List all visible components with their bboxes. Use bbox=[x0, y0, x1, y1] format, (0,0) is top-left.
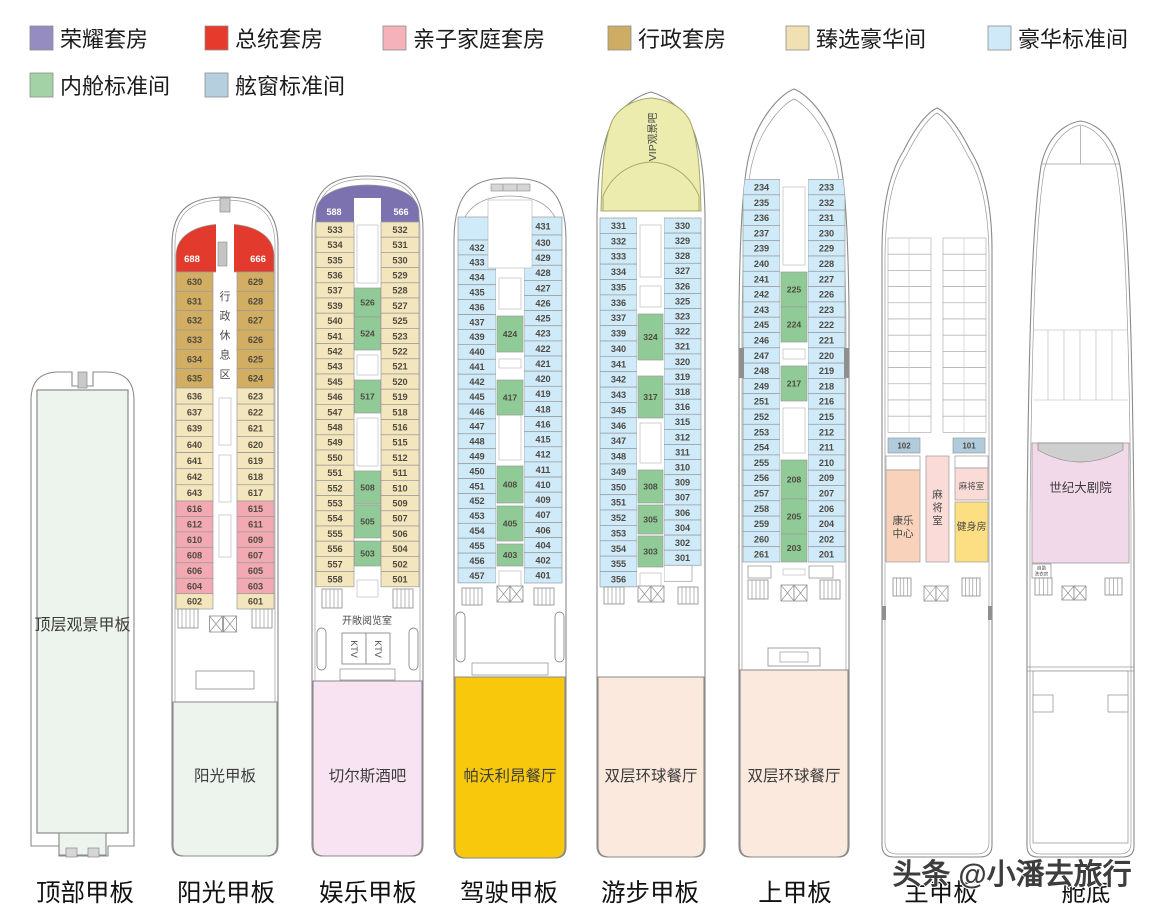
svg-text:203: 203 bbox=[787, 543, 802, 553]
svg-text:315: 315 bbox=[675, 417, 690, 427]
svg-text:241: 241 bbox=[754, 274, 769, 284]
svg-text:总统套房: 总统套房 bbox=[235, 27, 323, 52]
svg-text:545: 545 bbox=[327, 377, 342, 387]
svg-text:529: 529 bbox=[392, 271, 407, 281]
svg-text:623: 623 bbox=[248, 391, 263, 401]
svg-text:帕沃利昂餐厅: 帕沃利昂餐厅 bbox=[463, 767, 556, 785]
svg-text:101: 101 bbox=[962, 441, 976, 450]
svg-text:446: 446 bbox=[469, 407, 484, 417]
svg-text:225: 225 bbox=[787, 285, 802, 295]
svg-text:609: 609 bbox=[248, 535, 263, 545]
svg-text:547: 547 bbox=[327, 407, 342, 417]
svg-text:540: 540 bbox=[327, 316, 342, 326]
svg-text:606: 606 bbox=[187, 566, 202, 576]
svg-text:娱乐甲板: 娱乐甲板 bbox=[319, 879, 417, 907]
svg-text:上甲板: 上甲板 bbox=[758, 879, 832, 907]
svg-text:410: 410 bbox=[535, 480, 550, 490]
svg-text:353: 353 bbox=[611, 528, 626, 538]
svg-text:552: 552 bbox=[327, 483, 342, 493]
svg-text:642: 642 bbox=[187, 472, 202, 482]
svg-text:211: 211 bbox=[819, 443, 834, 453]
svg-text:324: 324 bbox=[643, 332, 658, 342]
svg-text:608: 608 bbox=[187, 550, 202, 560]
svg-text:206: 206 bbox=[819, 504, 834, 514]
svg-text:405: 405 bbox=[503, 519, 518, 529]
svg-text:610: 610 bbox=[187, 535, 202, 545]
svg-text:506: 506 bbox=[392, 529, 407, 539]
svg-text:630: 630 bbox=[187, 277, 202, 287]
svg-text:204: 204 bbox=[819, 519, 835, 529]
svg-text:440: 440 bbox=[469, 347, 484, 357]
svg-text:520: 520 bbox=[392, 377, 407, 387]
svg-text:荣耀套房: 荣耀套房 bbox=[60, 27, 148, 52]
svg-text:243: 243 bbox=[754, 305, 769, 315]
svg-text:221: 221 bbox=[819, 336, 834, 346]
svg-text:511: 511 bbox=[393, 468, 408, 478]
svg-text:254: 254 bbox=[754, 443, 770, 453]
svg-text:516: 516 bbox=[392, 423, 407, 433]
svg-text:526: 526 bbox=[360, 298, 375, 308]
svg-text:453: 453 bbox=[469, 511, 484, 521]
svg-text:内舱标准间: 内舱标准间 bbox=[60, 74, 170, 99]
svg-text:228: 228 bbox=[819, 259, 834, 269]
svg-text:603: 603 bbox=[248, 581, 263, 591]
svg-text:337: 337 bbox=[611, 313, 626, 323]
svg-text:431: 431 bbox=[535, 221, 550, 231]
svg-text:527: 527 bbox=[392, 301, 407, 311]
svg-text:641: 641 bbox=[187, 456, 202, 466]
svg-text:开敞阅览室: 开敞阅览室 bbox=[342, 614, 392, 627]
svg-text:625: 625 bbox=[248, 354, 263, 364]
svg-text:532: 532 bbox=[392, 225, 407, 235]
svg-text:452: 452 bbox=[469, 496, 484, 506]
svg-text:424: 424 bbox=[503, 329, 518, 339]
svg-text:537: 537 bbox=[327, 286, 342, 296]
svg-text:229: 229 bbox=[819, 244, 834, 254]
svg-text:404: 404 bbox=[535, 541, 551, 551]
svg-text:619: 619 bbox=[248, 456, 263, 466]
svg-text:521: 521 bbox=[392, 362, 407, 372]
svg-text:豪华标准间: 豪华标准间 bbox=[1018, 27, 1128, 52]
svg-text:419: 419 bbox=[535, 389, 550, 399]
svg-text:游步甲板: 游步甲板 bbox=[601, 879, 699, 907]
svg-text:304: 304 bbox=[675, 523, 691, 533]
svg-text:242: 242 bbox=[754, 290, 769, 300]
svg-text:530: 530 bbox=[392, 255, 407, 265]
svg-text:222: 222 bbox=[819, 320, 834, 330]
svg-text:301: 301 bbox=[675, 553, 690, 563]
svg-text:210: 210 bbox=[819, 458, 834, 468]
svg-text:316: 316 bbox=[675, 402, 690, 412]
svg-text:215: 215 bbox=[819, 412, 834, 422]
svg-text:408: 408 bbox=[503, 480, 518, 490]
svg-text:441: 441 bbox=[469, 362, 484, 372]
svg-text:224: 224 bbox=[787, 320, 802, 330]
svg-text:541: 541 bbox=[327, 331, 342, 341]
svg-text:233: 233 bbox=[819, 183, 834, 193]
svg-text:416: 416 bbox=[535, 419, 550, 429]
svg-text:505: 505 bbox=[360, 517, 375, 527]
svg-text:行政套房: 行政套房 bbox=[638, 27, 726, 52]
svg-text:602: 602 bbox=[187, 597, 202, 607]
svg-text:666: 666 bbox=[250, 254, 266, 265]
svg-text:409: 409 bbox=[535, 495, 550, 505]
svg-text:428: 428 bbox=[535, 268, 550, 278]
svg-text:509: 509 bbox=[392, 499, 407, 509]
svg-text:322: 322 bbox=[675, 327, 690, 337]
svg-text:556: 556 bbox=[327, 544, 342, 554]
svg-text:320: 320 bbox=[675, 357, 690, 367]
svg-text:舷窗标准间: 舷窗标准间 bbox=[235, 74, 345, 99]
svg-text:348: 348 bbox=[611, 452, 626, 462]
svg-text:618: 618 bbox=[248, 472, 263, 482]
svg-text:457: 457 bbox=[469, 571, 484, 581]
svg-text:417: 417 bbox=[503, 393, 518, 403]
svg-text:629: 629 bbox=[248, 277, 263, 287]
svg-text:607: 607 bbox=[248, 550, 263, 560]
svg-text:310: 310 bbox=[675, 463, 690, 473]
svg-text:415: 415 bbox=[535, 435, 550, 445]
svg-text:351: 351 bbox=[611, 498, 626, 508]
svg-text:507: 507 bbox=[392, 514, 407, 524]
svg-text:551: 551 bbox=[327, 468, 342, 478]
svg-text:455: 455 bbox=[469, 541, 484, 551]
svg-text:510: 510 bbox=[392, 483, 407, 493]
svg-text:617: 617 bbox=[248, 488, 263, 498]
svg-text:顶层观景甲板: 顶层观景甲板 bbox=[34, 616, 130, 634]
svg-text:319: 319 bbox=[675, 372, 690, 382]
svg-text:355: 355 bbox=[611, 559, 626, 569]
svg-text:234: 234 bbox=[754, 183, 770, 193]
svg-text:688: 688 bbox=[184, 254, 200, 265]
svg-text:434: 434 bbox=[469, 273, 485, 283]
svg-text:236: 236 bbox=[754, 213, 769, 223]
svg-text:240: 240 bbox=[754, 259, 769, 269]
svg-text:350: 350 bbox=[611, 482, 626, 492]
svg-text:588: 588 bbox=[326, 207, 341, 217]
svg-text:227: 227 bbox=[819, 274, 834, 284]
svg-text:330: 330 bbox=[675, 221, 690, 231]
svg-text:321: 321 bbox=[675, 342, 690, 352]
svg-text:524: 524 bbox=[360, 329, 375, 339]
svg-text:216: 216 bbox=[819, 397, 834, 407]
svg-text:335: 335 bbox=[611, 283, 626, 293]
svg-text:世纪大剧院: 世纪大剧院 bbox=[1049, 481, 1112, 495]
svg-text:543: 543 bbox=[327, 362, 342, 372]
svg-text:252: 252 bbox=[754, 412, 769, 422]
svg-text:531: 531 bbox=[392, 240, 407, 250]
svg-text:麻将室: 麻将室 bbox=[932, 488, 943, 527]
svg-text:341: 341 bbox=[611, 359, 626, 369]
svg-text:429: 429 bbox=[535, 253, 550, 263]
svg-text:318: 318 bbox=[675, 387, 690, 397]
svg-text:331: 331 bbox=[611, 221, 626, 231]
svg-text:207: 207 bbox=[819, 489, 834, 499]
svg-text:KTV: KTV bbox=[349, 640, 359, 658]
svg-text:麻将室: 麻将室 bbox=[959, 481, 985, 491]
svg-text:439: 439 bbox=[469, 332, 484, 342]
svg-text:546: 546 bbox=[327, 392, 342, 402]
svg-text:327: 327 bbox=[675, 266, 690, 276]
svg-text:201: 201 bbox=[819, 550, 834, 560]
svg-text:339: 339 bbox=[611, 329, 626, 339]
svg-text:407: 407 bbox=[535, 510, 550, 520]
svg-text:604: 604 bbox=[187, 581, 203, 591]
svg-text:624: 624 bbox=[248, 374, 264, 384]
svg-text:632: 632 bbox=[187, 316, 202, 326]
svg-text:626: 626 bbox=[248, 335, 263, 345]
svg-text:343: 343 bbox=[611, 390, 626, 400]
svg-text:261: 261 bbox=[754, 550, 769, 560]
svg-text:259: 259 bbox=[754, 519, 769, 529]
svg-text:436: 436 bbox=[469, 302, 484, 312]
svg-text:双层环球餐厅: 双层环球餐厅 bbox=[604, 767, 697, 785]
svg-text:亲子家庭套房: 亲子家庭套房 bbox=[413, 27, 545, 52]
svg-text:325: 325 bbox=[675, 296, 690, 306]
svg-text:307: 307 bbox=[675, 493, 690, 503]
svg-text:518: 518 bbox=[392, 407, 407, 417]
svg-text:451: 451 bbox=[469, 481, 484, 491]
svg-text:612: 612 bbox=[187, 520, 202, 530]
svg-text:VIP观景吧: VIP观景吧 bbox=[647, 112, 659, 161]
svg-text:558: 558 bbox=[327, 575, 342, 585]
svg-text:449: 449 bbox=[469, 452, 484, 462]
svg-text:328: 328 bbox=[675, 251, 690, 261]
svg-text:248: 248 bbox=[754, 366, 769, 376]
svg-text:427: 427 bbox=[535, 283, 550, 293]
svg-text:406: 406 bbox=[535, 525, 550, 535]
svg-text:542: 542 bbox=[327, 347, 342, 357]
svg-text:217: 217 bbox=[787, 379, 802, 389]
svg-text:260: 260 bbox=[754, 534, 769, 544]
svg-text:303: 303 bbox=[643, 547, 658, 557]
svg-text:522: 522 bbox=[392, 347, 407, 357]
svg-text:239: 239 bbox=[754, 244, 769, 254]
svg-text:620: 620 bbox=[248, 440, 263, 450]
svg-text:566: 566 bbox=[393, 207, 408, 217]
svg-text:阳光甲板: 阳光甲板 bbox=[194, 767, 256, 785]
svg-text:205: 205 bbox=[787, 512, 802, 522]
svg-text:249: 249 bbox=[754, 381, 769, 391]
svg-text:501: 501 bbox=[392, 575, 407, 585]
svg-text:621: 621 bbox=[248, 424, 263, 434]
svg-text:402: 402 bbox=[535, 556, 550, 566]
svg-text:528: 528 bbox=[392, 286, 407, 296]
svg-text:345: 345 bbox=[611, 405, 626, 415]
svg-text:534: 534 bbox=[327, 240, 343, 250]
svg-text:251: 251 bbox=[754, 397, 769, 407]
svg-text:302: 302 bbox=[675, 538, 690, 548]
svg-text:502: 502 bbox=[392, 559, 407, 569]
svg-text:311: 311 bbox=[675, 447, 690, 457]
svg-text:218: 218 bbox=[819, 381, 834, 391]
svg-text:553: 553 bbox=[327, 499, 342, 509]
svg-text:550: 550 bbox=[327, 453, 342, 463]
svg-text:323: 323 bbox=[675, 312, 690, 322]
svg-text:616: 616 bbox=[187, 504, 202, 514]
svg-text:354: 354 bbox=[611, 544, 627, 554]
svg-text:425: 425 bbox=[535, 314, 550, 324]
svg-text:212: 212 bbox=[819, 427, 834, 437]
svg-text:622: 622 bbox=[248, 408, 263, 418]
svg-text:317: 317 bbox=[643, 392, 658, 402]
svg-text:445: 445 bbox=[469, 392, 484, 402]
svg-text:535: 535 bbox=[327, 255, 342, 265]
svg-text:601: 601 bbox=[248, 597, 263, 607]
svg-text:633: 633 bbox=[187, 335, 202, 345]
svg-text:245: 245 bbox=[754, 320, 769, 330]
svg-text:340: 340 bbox=[611, 344, 626, 354]
svg-text:230: 230 bbox=[819, 228, 834, 238]
svg-text:454: 454 bbox=[469, 526, 485, 536]
svg-text:驾驶甲板: 驾驶甲板 bbox=[460, 879, 558, 907]
svg-text:448: 448 bbox=[469, 437, 484, 447]
svg-text:头条 @小潘去旅行: 头条 @小潘去旅行 bbox=[892, 858, 1131, 891]
svg-text:102: 102 bbox=[897, 441, 911, 450]
svg-text:235: 235 bbox=[754, 198, 769, 208]
svg-text:健身房: 健身房 bbox=[957, 520, 987, 533]
svg-text:256: 256 bbox=[754, 473, 769, 483]
svg-text:312: 312 bbox=[675, 432, 690, 442]
svg-text:442: 442 bbox=[469, 377, 484, 387]
svg-text:557: 557 bbox=[327, 559, 342, 569]
svg-text:255: 255 bbox=[754, 458, 769, 468]
svg-text:412: 412 bbox=[535, 450, 550, 460]
svg-text:426: 426 bbox=[535, 298, 550, 308]
svg-text:阳光甲板: 阳光甲板 bbox=[177, 879, 275, 907]
svg-text:554: 554 bbox=[327, 514, 343, 524]
svg-text:356: 356 bbox=[611, 575, 626, 585]
svg-text:636: 636 bbox=[187, 391, 202, 401]
svg-text:639: 639 bbox=[187, 424, 202, 434]
svg-text:305: 305 bbox=[643, 515, 658, 525]
svg-text:403: 403 bbox=[503, 550, 518, 560]
svg-text:504: 504 bbox=[392, 544, 408, 554]
svg-text:247: 247 bbox=[754, 351, 769, 361]
svg-text:515: 515 bbox=[392, 438, 407, 448]
svg-text:634: 634 bbox=[187, 354, 203, 364]
svg-text:637: 637 bbox=[187, 408, 202, 418]
svg-text:231: 231 bbox=[819, 213, 834, 223]
svg-text:342: 342 bbox=[611, 375, 626, 385]
svg-text:423: 423 bbox=[535, 329, 550, 339]
svg-text:549: 549 bbox=[327, 438, 342, 448]
svg-text:336: 336 bbox=[611, 298, 626, 308]
svg-text:237: 237 bbox=[754, 228, 769, 238]
svg-text:508: 508 bbox=[360, 483, 375, 493]
svg-text:346: 346 bbox=[611, 421, 626, 431]
svg-text:308: 308 bbox=[643, 482, 658, 492]
svg-text:253: 253 bbox=[754, 427, 769, 437]
svg-text:525: 525 bbox=[392, 316, 407, 326]
svg-text:KTV: KTV bbox=[373, 640, 383, 658]
svg-text:333: 333 bbox=[611, 252, 626, 262]
svg-text:411: 411 bbox=[536, 465, 551, 475]
svg-text:643: 643 bbox=[187, 488, 202, 498]
svg-text:切尔斯酒吧: 切尔斯酒吧 bbox=[329, 767, 407, 785]
svg-text:202: 202 bbox=[819, 534, 834, 544]
svg-text:611: 611 bbox=[248, 520, 263, 530]
svg-text:220: 220 bbox=[819, 351, 834, 361]
svg-text:437: 437 bbox=[469, 317, 484, 327]
svg-text:456: 456 bbox=[469, 556, 484, 566]
svg-text:309: 309 bbox=[675, 478, 690, 488]
svg-text:226: 226 bbox=[819, 290, 834, 300]
svg-text:258: 258 bbox=[754, 504, 769, 514]
svg-text:512: 512 bbox=[392, 453, 407, 463]
svg-text:435: 435 bbox=[469, 288, 484, 298]
svg-text:503: 503 bbox=[360, 549, 375, 559]
svg-text:209: 209 bbox=[819, 473, 834, 483]
svg-text:418: 418 bbox=[535, 404, 550, 414]
svg-text:顶部甲板: 顶部甲板 bbox=[36, 879, 134, 907]
svg-text:640: 640 bbox=[187, 440, 202, 450]
svg-text:539: 539 bbox=[327, 301, 342, 311]
svg-text:605: 605 bbox=[248, 566, 263, 576]
svg-text:447: 447 bbox=[469, 422, 484, 432]
svg-text:347: 347 bbox=[611, 436, 626, 446]
svg-text:517: 517 bbox=[360, 392, 375, 402]
svg-text:555: 555 bbox=[327, 529, 342, 539]
svg-text:533: 533 bbox=[327, 225, 342, 235]
svg-text:332: 332 bbox=[611, 236, 626, 246]
svg-text:257: 257 bbox=[754, 489, 769, 499]
svg-text:430: 430 bbox=[535, 238, 550, 248]
svg-text:246: 246 bbox=[754, 336, 769, 346]
svg-text:232: 232 bbox=[819, 198, 834, 208]
svg-text:628: 628 bbox=[248, 296, 263, 306]
svg-text:401: 401 bbox=[535, 571, 550, 581]
svg-text:219: 219 bbox=[819, 366, 834, 376]
svg-text:523: 523 bbox=[392, 331, 407, 341]
svg-text:420: 420 bbox=[535, 374, 550, 384]
svg-text:548: 548 bbox=[327, 423, 342, 433]
svg-text:635: 635 bbox=[187, 374, 202, 384]
svg-text:352: 352 bbox=[611, 513, 626, 523]
svg-text:326: 326 bbox=[675, 281, 690, 291]
svg-text:223: 223 bbox=[819, 305, 834, 315]
svg-text:627: 627 bbox=[248, 316, 263, 326]
svg-text:422: 422 bbox=[535, 344, 550, 354]
svg-text:329: 329 bbox=[675, 236, 690, 246]
svg-text:双层环球餐厅: 双层环球餐厅 bbox=[747, 767, 840, 785]
svg-text:306: 306 bbox=[675, 508, 690, 518]
svg-text:519: 519 bbox=[392, 392, 407, 402]
svg-text:432: 432 bbox=[469, 243, 484, 253]
svg-text:208: 208 bbox=[787, 475, 802, 485]
svg-text:631: 631 bbox=[187, 296, 202, 306]
svg-text:615: 615 bbox=[248, 504, 263, 514]
svg-text:421: 421 bbox=[535, 359, 550, 369]
svg-text:433: 433 bbox=[469, 258, 484, 268]
svg-text:334: 334 bbox=[611, 267, 627, 277]
svg-text:450: 450 bbox=[469, 466, 484, 476]
svg-text:臻选豪华间: 臻选豪华间 bbox=[816, 27, 926, 52]
svg-text:349: 349 bbox=[611, 467, 626, 477]
svg-text:536: 536 bbox=[327, 271, 342, 281]
